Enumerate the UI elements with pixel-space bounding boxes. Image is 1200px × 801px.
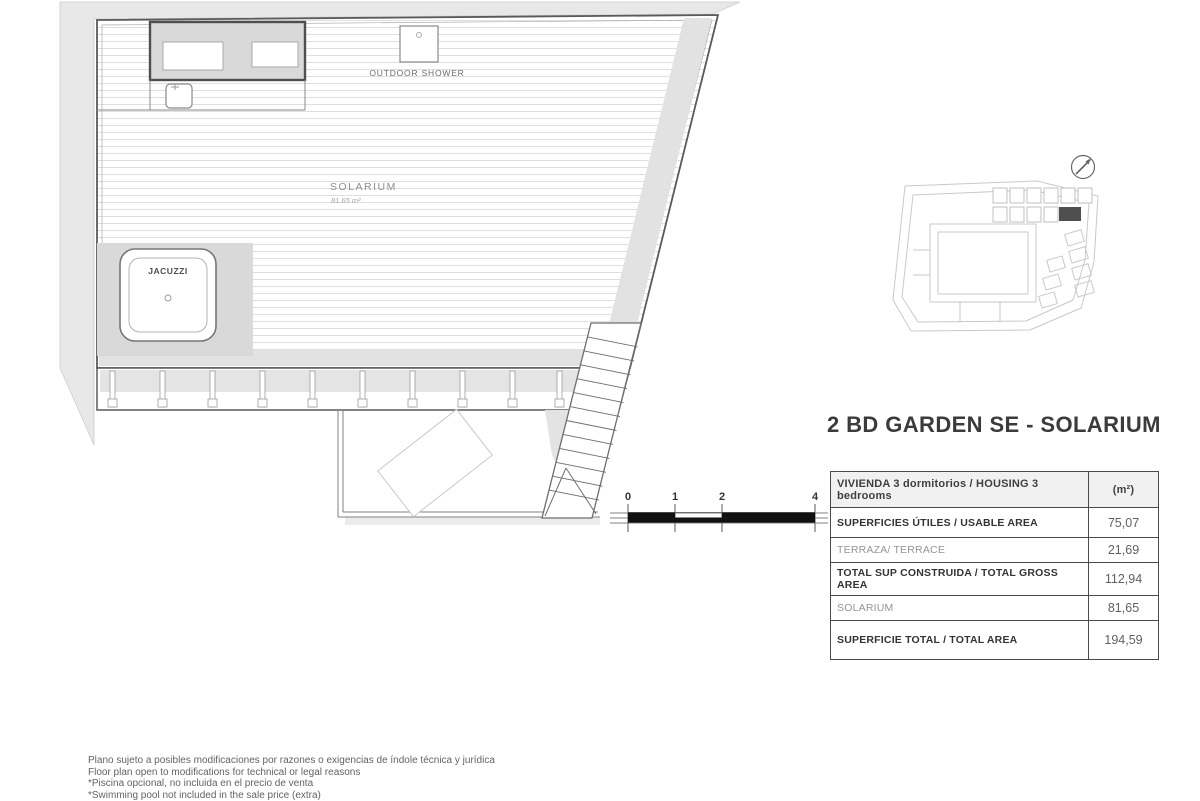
areas-table: VIVIENDA 3 dormitorios / HOUSING 3 bedro…: [830, 471, 1159, 660]
table-row-terrace-label: TERRAZA/ TERRACE: [831, 538, 1089, 563]
footnote-line: Plano sujeto a posibles modificaciones p…: [88, 755, 608, 767]
table-row-gross-area-label: TOTAL SUP CONSTRUIDA / TOTAL GROSS AREA: [831, 563, 1089, 596]
footnote-line: *Swimming pool not included in the sale …: [88, 790, 608, 801]
key-map: [893, 181, 1098, 331]
solarium-label: SOLARIUM: [330, 181, 397, 193]
table-row-usable-area-label: SUPERFICIES ÚTILES / USABLE AREA: [831, 508, 1089, 538]
footnotes: Plano sujeto a posibles modificaciones p…: [88, 755, 608, 801]
scale-label-0: 0: [625, 491, 631, 503]
plan-drawing: OUTDOOR SHOWER SOLARIUM 81.65 m² JACUZZI: [0, 0, 1200, 800]
highlighted-unit: [1059, 207, 1081, 221]
balcony-band: [97, 368, 630, 410]
table-row-solarium-label: SOLARIUM: [831, 596, 1089, 621]
scale-label-1: 1: [672, 491, 678, 503]
table-row-usable-area-value: 75,07: [1089, 508, 1158, 538]
solarium-area-label: 81.65 m²: [331, 196, 361, 205]
scale-label-4: 4: [812, 491, 819, 503]
footnote-line: *Piscina opcional, no incluida en el pre…: [88, 778, 608, 790]
sink-icon: [166, 84, 192, 108]
outdoor-shower-label: OUTDOOR SHOWER: [369, 68, 464, 78]
north-arrow-icon: [1072, 156, 1095, 179]
jacuzzi: JACUZZI: [97, 243, 253, 356]
table-header-unit: (m²): [1089, 472, 1158, 508]
table-header-label: VIVIENDA 3 dormitorios / HOUSING 3 bedro…: [831, 472, 1089, 508]
table-row-total-area-value: 194,59: [1089, 621, 1158, 659]
scale-label-2: 2: [719, 491, 725, 503]
footnote-line: Floor plan open to modifications for tec…: [88, 767, 608, 779]
table-row-total-area-label: SUPERFICIE TOTAL / TOTAL AREA: [831, 621, 1089, 659]
sun-lounger: [378, 409, 493, 516]
table-row-solarium-value: 81,65: [1089, 596, 1158, 621]
scale-bar: 0 1 2 4: [610, 491, 828, 532]
jacuzzi-label: JACUZZI: [148, 266, 187, 276]
floor-plan-sheet: { "title": "2 BD GARDEN SE - SOLARIUM", …: [0, 0, 1200, 800]
table-row-terrace-value: 21,69: [1089, 538, 1158, 563]
page-title: 2 BD GARDEN SE - SOLARIUM: [827, 412, 1157, 438]
table-row-gross-area-value: 112,94: [1089, 563, 1158, 596]
